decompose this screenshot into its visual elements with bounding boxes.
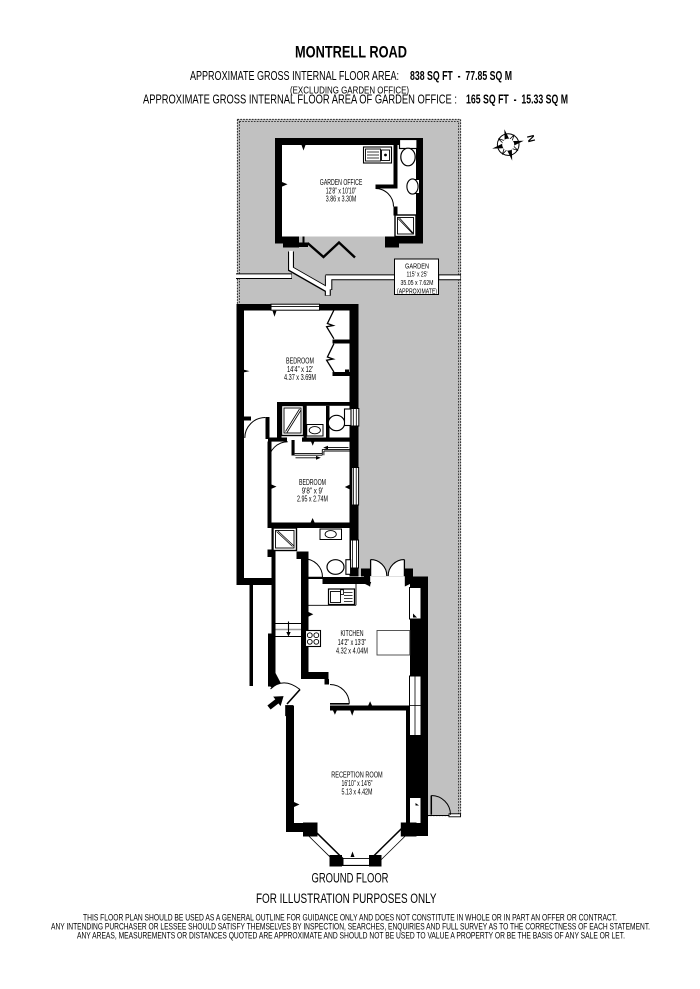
svg-text:4.37 x 3.69M: 4.37 x 3.69M [284,373,316,382]
svg-text:APPROXIMATE GROSS INTERNAL FLO: APPROXIMATE GROSS INTERNAL FLOOR AREA: [190,68,399,83]
svg-text:14'2" x 13'3": 14'2" x 13'3" [338,638,367,647]
svg-text:ANY AREAS, MEASUREMENTS OR DIS: ANY AREAS, MEASUREMENTS OR DISTANCES QUO… [77,931,625,941]
svg-text:(APPROXIMATE): (APPROXIMATE) [397,286,437,295]
svg-text:16'10" x 14'6": 16'10" x 14'6" [342,779,373,788]
svg-text:KITCHEN: KITCHEN [341,629,364,638]
svg-text:165 SQ FT - 15.33 SQ M: 165 SQ FT - 15.33 SQ M [466,92,568,107]
svg-text:GROUND FLOOR: GROUND FLOOR [312,871,389,886]
svg-text:838 SQ FT - 77.85 SQ M: 838 SQ FT - 77.85 SQ M [410,68,512,83]
svg-text:FOR ILLUSTRATION PURPOSES ONLY: FOR ILLUSTRATION PURPOSES ONLY [256,891,437,906]
svg-text:RECEPTION ROOM: RECEPTION ROOM [331,770,383,779]
svg-text:5.13 x 4.42M: 5.13 x 4.42M [342,788,373,797]
svg-text:4.32 x 4.04M: 4.32 x 4.04M [336,647,368,656]
svg-text:3.86 x 3.30M: 3.86 x 3.30M [326,195,357,204]
svg-text:APPROXIMATE GROSS INTERNAL FLO: APPROXIMATE GROSS INTERNAL FLOOR AREA OF… [143,92,457,107]
svg-text:2.95 x 2.74M: 2.95 x 2.74M [297,495,328,504]
svg-text:MONTRELL ROAD: MONTRELL ROAD [295,43,407,62]
